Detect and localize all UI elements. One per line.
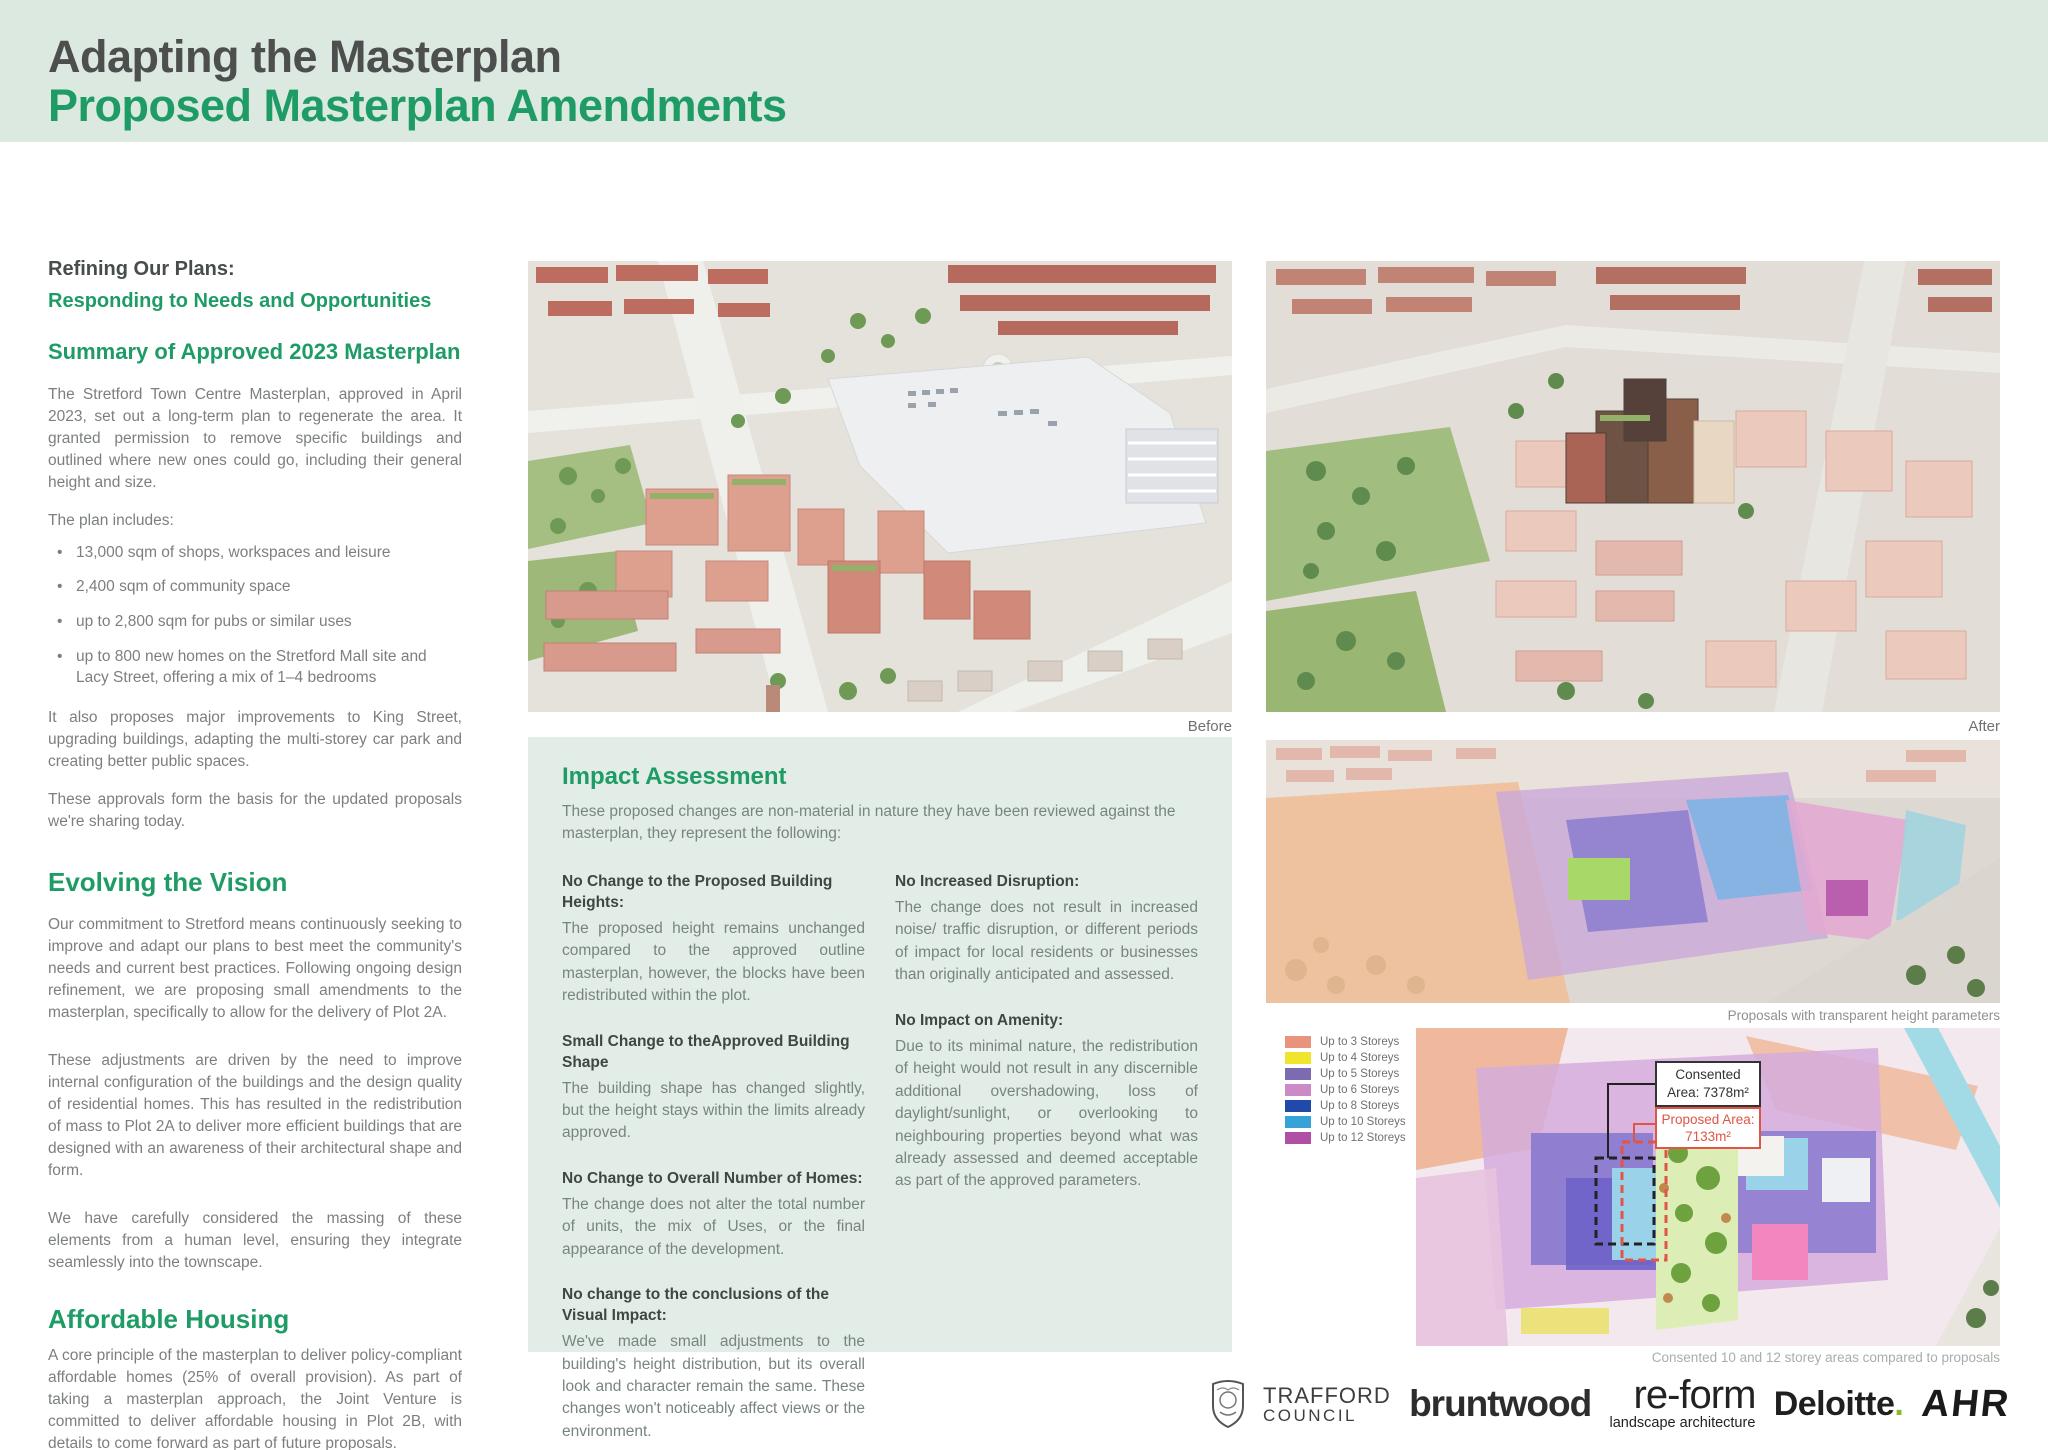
legend-item: Up to 3 Storeys (1285, 1034, 1406, 1050)
plan-includes-label: The plan includes: (48, 510, 462, 532)
reform-tagline: landscape architecture (1610, 1415, 1756, 1431)
height-parameters-illustration (1266, 740, 2000, 1003)
trafford-council-logo: TRAFFORD COUNCIL (1205, 1378, 1391, 1430)
legend-swatch (1285, 1052, 1311, 1064)
proposed-area-label-line1: Proposed Area: (1661, 1112, 1754, 1127)
evolving-vision-heading: Evolving the Vision (48, 867, 462, 898)
trafford-crest-icon (1205, 1378, 1251, 1430)
after-caption: After (1266, 718, 2000, 735)
impact-column-right: No Increased Disruption: The change does… (895, 872, 1198, 1450)
list-item: 13,000 sqm of shops, workspaces and leis… (48, 542, 462, 564)
header-band: Adapting the Masterplan Proposed Masterp… (0, 0, 2048, 142)
left-text-column: Refining Our Plans: Responding to Needs … (48, 256, 462, 1450)
impact-assessment-intro: These proposed changes are non-material … (562, 801, 1198, 846)
impact-item-body: The change does not alter the total numb… (562, 1194, 865, 1261)
legend-item: Up to 6 Storeys (1285, 1082, 1406, 1098)
legend-label: Up to 3 Storeys (1320, 1036, 1399, 1048)
impact-item: No Impact on Amenity: Due to its minimal… (895, 1011, 1198, 1193)
trafford-wordmark-line1: TRAFFORD (1263, 1384, 1391, 1407)
impact-item-body: We've made small adjustments to the buil… (562, 1331, 865, 1443)
legend-swatch (1285, 1068, 1311, 1080)
before-render-illustration (528, 261, 1232, 712)
proposed-area-label-line2: 7133m² (1685, 1129, 1731, 1144)
impact-item-heading: No change to the conclusions of the Visu… (562, 1285, 865, 1327)
evolving-paragraph-1: Our commitment to Stretford means contin… (48, 914, 462, 1024)
refining-plans-heading: Refining Our Plans: (48, 256, 462, 282)
impact-item-heading: Small Change to theApproved Building Sha… (562, 1032, 865, 1074)
legend-label: Up to 10 Storeys (1320, 1116, 1406, 1128)
ahr-logo: AHR (1919, 1383, 2012, 1426)
page-subtitle: Proposed Masterplan Amendments (48, 83, 2048, 130)
after-render-illustration (1266, 261, 2000, 712)
legend-swatch (1285, 1036, 1311, 1048)
list-item: 2,400 sqm of community space (48, 576, 462, 598)
plan-includes-list: 13,000 sqm of shops, workspaces and leis… (48, 542, 462, 689)
impact-item-heading: No Increased Disruption: (895, 872, 1198, 893)
legend-swatch (1285, 1132, 1311, 1144)
parameters-caption: Proposals with transparent height parame… (1266, 1008, 2000, 1023)
impact-item-body: The building shape has changed slightly,… (562, 1078, 865, 1145)
impact-item: No change to the conclusions of the Visu… (562, 1285, 865, 1443)
partner-logos-row: TRAFFORD COUNCIL bruntwood re-form lands… (1205, 1372, 2010, 1436)
legend-label: Up to 12 Storeys (1320, 1132, 1406, 1144)
impact-assessment-panel: Impact Assessment These proposed changes… (528, 737, 1232, 1352)
legend-item: Up to 12 Storeys (1285, 1130, 1406, 1146)
legend-label: Up to 4 Storeys (1320, 1052, 1399, 1064)
before-caption: Before (528, 718, 1232, 735)
responding-needs-heading: Responding to Needs and Opportunities (48, 288, 462, 314)
page-title: Adapting the Masterplan (48, 34, 2048, 81)
impact-item-heading: No Change to Overall Number of Homes: (562, 1169, 865, 1190)
evolving-paragraph-3: We have carefully considered the massing… (48, 1208, 462, 1274)
legend-item: Up to 4 Storeys (1285, 1050, 1406, 1066)
legend-label: Up to 5 Storeys (1320, 1068, 1399, 1080)
legend-swatch (1285, 1100, 1311, 1112)
impact-item-body: The proposed height remains unchanged co… (562, 918, 865, 1008)
impact-column-left: No Change to the Proposed Building Heigh… (562, 872, 865, 1450)
map-caption: Consented 10 and 12 storey areas compare… (1416, 1350, 2000, 1365)
legend-swatch (1285, 1084, 1311, 1096)
bruntwood-logo: bruntwood (1409, 1383, 1591, 1425)
after-aerial-render (1266, 261, 2000, 712)
consented-area-label-line1: Consented (1675, 1067, 1740, 1082)
legend-item: Up to 10 Storeys (1285, 1114, 1406, 1130)
reform-wordmark: re-form (1610, 1377, 1756, 1413)
approvals-paragraph: These approvals form the basis for the u… (48, 789, 462, 833)
trafford-wordmark-line2: COUNCIL (1263, 1407, 1391, 1425)
masterplan-consultation-board: Adapting the Masterplan Proposed Masterp… (0, 0, 2048, 1450)
affordable-housing-paragraph: A core principle of the masterplan to de… (48, 1345, 462, 1450)
storey-height-legend: Up to 3 Storeys Up to 4 Storeys Up to 5 … (1285, 1034, 1406, 1146)
summary-heading: Summary of Approved 2023 Masterplan (48, 338, 462, 366)
consented-proposed-map-illustration: Consented Area: 7378m² Proposed Area: 71… (1416, 1028, 2000, 1346)
impact-item-body: The change does not result in increased … (895, 897, 1198, 987)
impact-item-heading: No Change to the Proposed Building Heigh… (562, 872, 865, 914)
height-parameters-render (1266, 740, 2000, 1003)
legend-swatch (1285, 1116, 1311, 1128)
consented-area-label-line2: Area: 7378m² (1667, 1085, 1749, 1100)
deloitte-logo: Deloitte. (1774, 1385, 1904, 1424)
consented-proposed-map: Consented Area: 7378m² Proposed Area: 71… (1416, 1028, 2000, 1346)
affordable-housing-heading: Affordable Housing (48, 1304, 462, 1335)
impact-assessment-title: Impact Assessment (562, 763, 1198, 791)
list-item: up to 2,800 sqm for pubs or similar uses (48, 611, 462, 633)
before-aerial-render (528, 261, 1232, 712)
king-street-paragraph: It also proposes major improvements to K… (48, 707, 462, 773)
reform-logo: re-form landscape architecture (1610, 1377, 1756, 1431)
impact-item: No Change to the Proposed Building Heigh… (562, 872, 865, 1008)
impact-item: No Increased Disruption: The change does… (895, 872, 1198, 987)
impact-item-heading: No Impact on Amenity: (895, 1011, 1198, 1032)
legend-label: Up to 6 Storeys (1320, 1084, 1399, 1096)
legend-item: Up to 8 Storeys (1285, 1098, 1406, 1114)
list-item: up to 800 new homes on the Stretford Mal… (48, 646, 462, 689)
deloitte-wordmark: Deloitte (1774, 1385, 1895, 1423)
evolving-paragraph-2: These adjustments are driven by the need… (48, 1050, 462, 1182)
impact-item-body: Due to its minimal nature, the redistrib… (895, 1036, 1198, 1193)
impact-item: No Change to Overall Number of Homes: Th… (562, 1169, 865, 1261)
deloitte-green-dot: . (1894, 1385, 1903, 1423)
legend-label: Up to 8 Storeys (1320, 1100, 1399, 1112)
impact-item: Small Change to theApproved Building Sha… (562, 1032, 865, 1145)
legend-item: Up to 5 Storeys (1285, 1066, 1406, 1082)
summary-paragraph: The Stretford Town Centre Masterplan, ap… (48, 384, 462, 494)
